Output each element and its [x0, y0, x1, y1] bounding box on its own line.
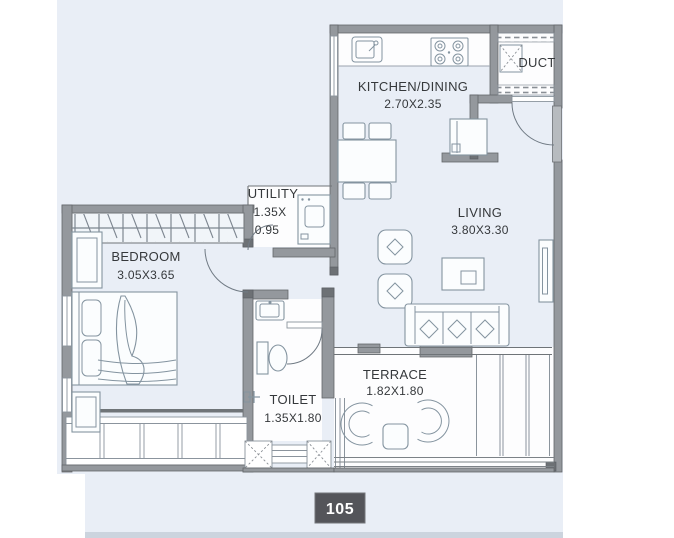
duct-label: DUCT [518, 55, 555, 70]
utility-dims-1: 1.35X [254, 205, 287, 219]
dining-chair [369, 123, 391, 139]
wall-right-outer [554, 160, 562, 472]
floorplan-page: KITCHEN/DINING 2.70X2.35 DUCT LIVING 3.8… [0, 0, 674, 538]
bedroom-dims: 3.05X3.65 [117, 268, 174, 282]
utility-dims-2: 0.95 [255, 223, 280, 237]
wall-kitchen-top [330, 25, 498, 33]
kitchen-label: KITCHEN/DINING [358, 79, 468, 94]
bedroom-side-window-1 [63, 296, 72, 346]
bed [72, 292, 177, 385]
terrace-table [383, 424, 408, 449]
armchair [378, 274, 412, 308]
wall-toilet-right [322, 288, 334, 398]
floorplan-drawing: KITCHEN/DINING 2.70X2.35 DUCT LIVING 3.8… [0, 0, 674, 538]
toilet-dims: 1.35X1.80 [264, 411, 321, 425]
jamb-cap [243, 290, 253, 298]
toilet-label: TOILET [269, 392, 316, 407]
canvas-bottom-strip [57, 532, 563, 538]
dining-chair [343, 123, 365, 139]
wall-toilet-top [253, 290, 288, 299]
fridge [450, 119, 487, 155]
kitchen-dims: 2.70X2.35 [384, 97, 441, 111]
unit-number-badge: 105 [315, 493, 365, 523]
armchair [378, 230, 412, 264]
dining-table [338, 140, 396, 182]
terrace-dims: 1.82X1.80 [366, 384, 423, 398]
washbasin [256, 301, 284, 320]
sofa [405, 304, 509, 346]
wall-utility-bottom [273, 248, 335, 257]
wall-bedroom-top [62, 205, 254, 213]
unit-number: 105 [326, 501, 354, 518]
terrace-label: TERRACE [363, 367, 427, 382]
tv-unit [539, 240, 553, 302]
living-label: LIVING [458, 205, 502, 220]
dresser [72, 232, 102, 288]
living-dims: 3.80X3.30 [451, 223, 508, 237]
dining-chair [369, 183, 391, 199]
entry-door-leaf [553, 106, 562, 162]
wall-duct-top [490, 25, 562, 33]
bedroom-label: BEDROOM [111, 249, 180, 264]
wall-duct-left [490, 25, 498, 103]
kitchen-window [331, 36, 338, 96]
utility-label: UTILITY [248, 186, 299, 201]
bedroom-side-window-2 [63, 378, 72, 412]
wall-terrace-small [358, 344, 380, 353]
jamb-cap [322, 288, 334, 297]
coffee-table [442, 258, 484, 290]
nightstand [72, 392, 100, 432]
dining-chair [343, 183, 365, 199]
margin-patch [0, 474, 85, 538]
jamb-cap [330, 267, 338, 275]
washing-machine [298, 195, 330, 244]
